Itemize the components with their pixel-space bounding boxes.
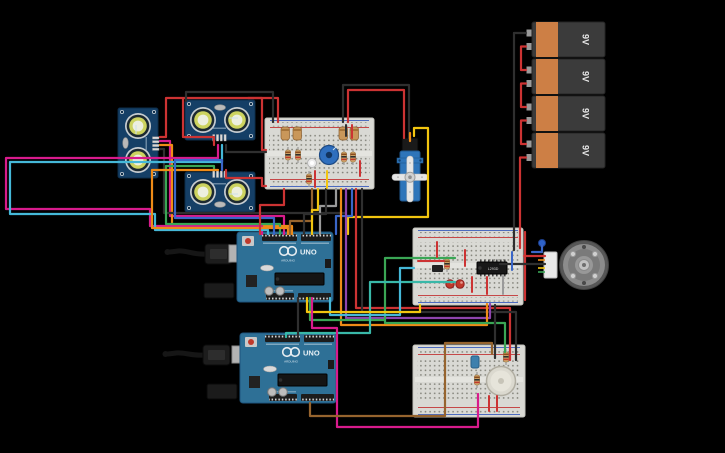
mcu-chip <box>275 273 324 285</box>
capacitor <box>268 388 277 397</box>
potentiometer[interactable] <box>320 146 339 165</box>
arduino-brand-label: ARDUINO <box>281 259 296 263</box>
voltage-regulator <box>246 275 257 287</box>
voltage-regulator <box>249 376 260 388</box>
battery-label: 9V <box>581 108 591 119</box>
usb-plug-icon <box>210 249 227 259</box>
capacitor <box>279 388 288 397</box>
arduino-brand-label: ARDUINO <box>284 360 299 364</box>
power-jack[interactable] <box>207 384 237 399</box>
dip-component[interactable] <box>432 265 443 272</box>
red-led[interactable] <box>456 280 464 288</box>
capacitor[interactable] <box>281 127 290 140</box>
arduino-model-label: UNO <box>303 349 320 358</box>
battery-label: 9V <box>581 34 591 45</box>
battery-9v[interactable]: 9V <box>527 96 606 131</box>
circuit-canvas: L293D ARDUINO UNO <box>0 0 725 453</box>
usb-plug-icon <box>208 350 225 360</box>
ultrasonic-sensor-left[interactable] <box>118 108 159 178</box>
capacitor <box>276 287 285 296</box>
capacitor <box>265 287 274 296</box>
power-jack[interactable] <box>204 283 234 298</box>
motor-driver-chip[interactable]: L293D <box>477 260 507 277</box>
icsp-header <box>328 360 334 369</box>
ultrasonic-sensor-top[interactable] <box>185 100 255 141</box>
arduino-model-label: UNO <box>300 248 317 257</box>
battery-9v[interactable]: 9V <box>527 133 606 168</box>
battery-9v[interactable]: 9V <box>527 59 606 94</box>
icsp-header <box>325 259 331 268</box>
white-led[interactable] <box>308 159 317 168</box>
battery-label: 9V <box>581 71 591 82</box>
piezo-buzzer[interactable] <box>487 367 516 396</box>
blue-capacitor[interactable] <box>471 356 479 368</box>
capacitor[interactable] <box>293 127 302 140</box>
chip-label: L293D <box>488 267 499 271</box>
battery-label: 9V <box>581 145 591 156</box>
mcu-chip <box>278 374 327 386</box>
battery-9v[interactable]: 9V <box>527 22 606 57</box>
